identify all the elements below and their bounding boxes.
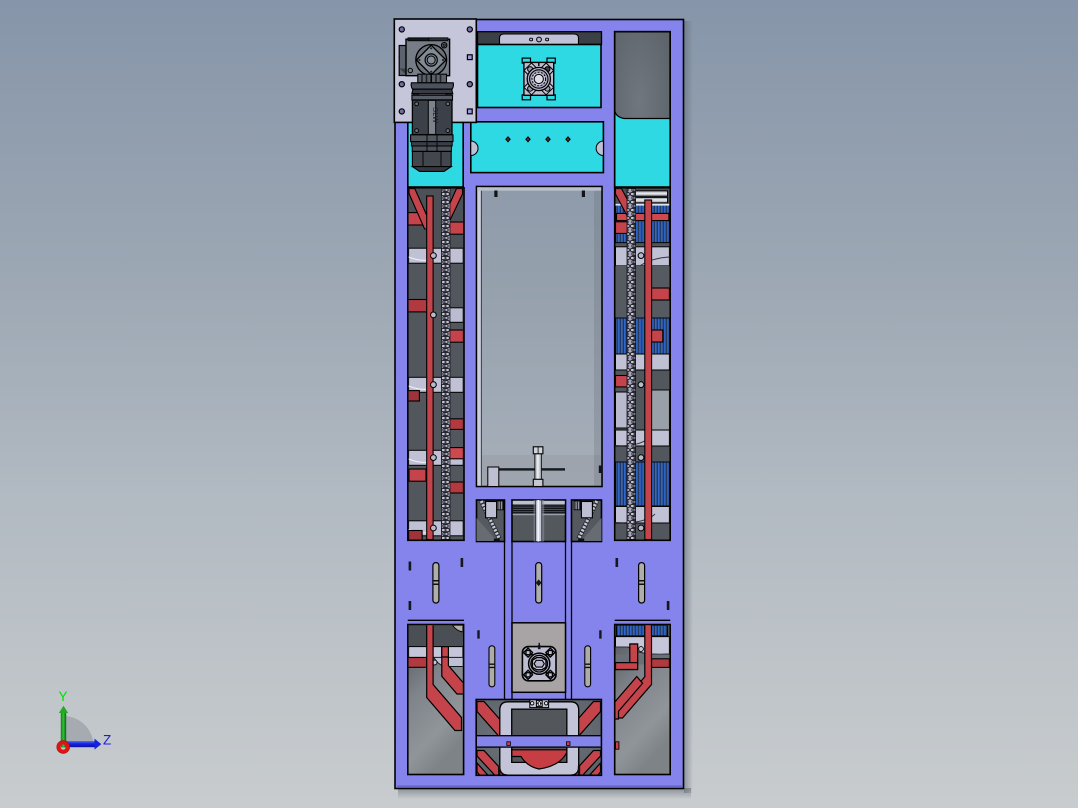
svg-text:Z: Z [103, 733, 111, 748]
svg-text:Y: Y [59, 689, 68, 704]
svg-text:SLW: SLW [431, 107, 440, 124]
